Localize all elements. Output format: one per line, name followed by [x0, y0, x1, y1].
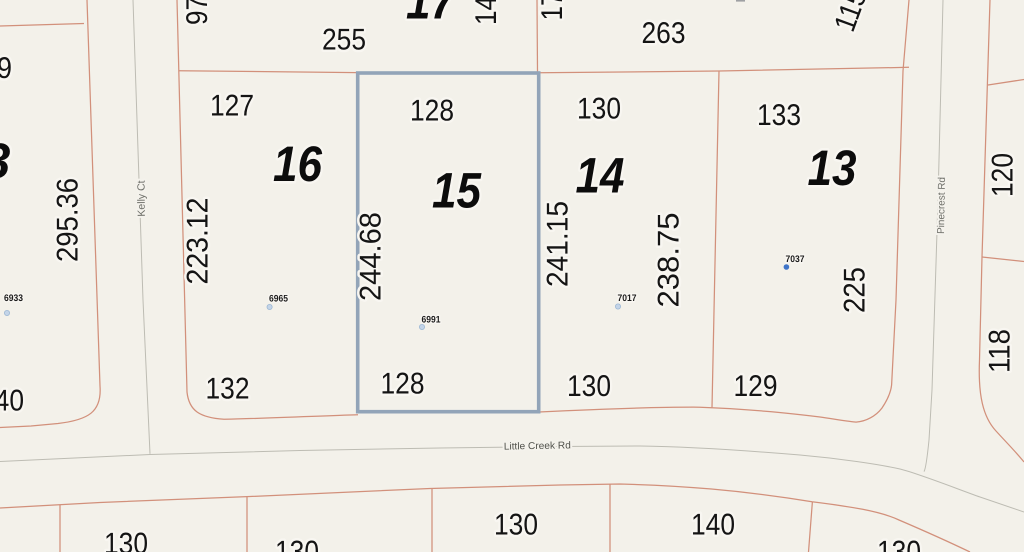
svg-text:14: 14 [576, 148, 625, 204]
svg-text:15: 15 [432, 162, 482, 218]
svg-text:97: 97 [181, 0, 214, 25]
svg-text:130: 130 [494, 509, 538, 542]
svg-text:130: 130 [877, 536, 921, 552]
svg-text:3: 3 [0, 133, 11, 189]
svg-text:128: 128 [381, 368, 425, 401]
svg-text:225: 225 [839, 267, 872, 313]
svg-text:9: 9 [0, 52, 12, 85]
svg-text:16: 16 [273, 136, 323, 192]
svg-text:17: 17 [406, 0, 457, 30]
svg-text:140: 140 [691, 509, 735, 542]
svg-text:295.36: 295.36 [52, 178, 85, 262]
svg-text:7037: 7037 [786, 254, 805, 265]
svg-text:130: 130 [567, 370, 611, 403]
svg-text:Kelly Ct: Kelly Ct [136, 180, 148, 216]
svg-text:130: 130 [104, 528, 148, 552]
svg-text:263: 263 [642, 17, 686, 50]
svg-text:127: 127 [210, 90, 254, 123]
svg-text:Little Creek Rd: Little Creek Rd [504, 440, 571, 452]
svg-text:130: 130 [275, 536, 319, 552]
svg-text:133: 133 [757, 99, 801, 132]
svg-text:132: 132 [206, 373, 250, 406]
svg-text:6965: 6965 [269, 294, 289, 305]
svg-text:244.68: 244.68 [355, 212, 388, 301]
svg-text:128: 128 [410, 95, 454, 128]
svg-text:255: 255 [322, 24, 366, 57]
svg-text:6991: 6991 [422, 315, 442, 326]
svg-text:120: 120 [987, 153, 1020, 197]
svg-text:7017: 7017 [618, 293, 637, 304]
svg-text:129: 129 [734, 370, 778, 403]
svg-text:140: 140 [0, 385, 24, 418]
svg-text:Pinecrest Rd: Pinecrest Rd [936, 177, 948, 234]
svg-text:6933: 6933 [4, 293, 23, 304]
svg-text:130: 130 [577, 93, 621, 126]
svg-text:13: 13 [808, 140, 857, 196]
svg-text:118: 118 [984, 329, 1017, 373]
svg-text:223.12: 223.12 [182, 198, 215, 285]
svg-text:241.15: 241.15 [542, 201, 575, 287]
svg-text:17: 17 [536, 0, 569, 21]
svg-text:14: 14 [470, 0, 503, 25]
svg-text:238.75: 238.75 [653, 213, 686, 308]
